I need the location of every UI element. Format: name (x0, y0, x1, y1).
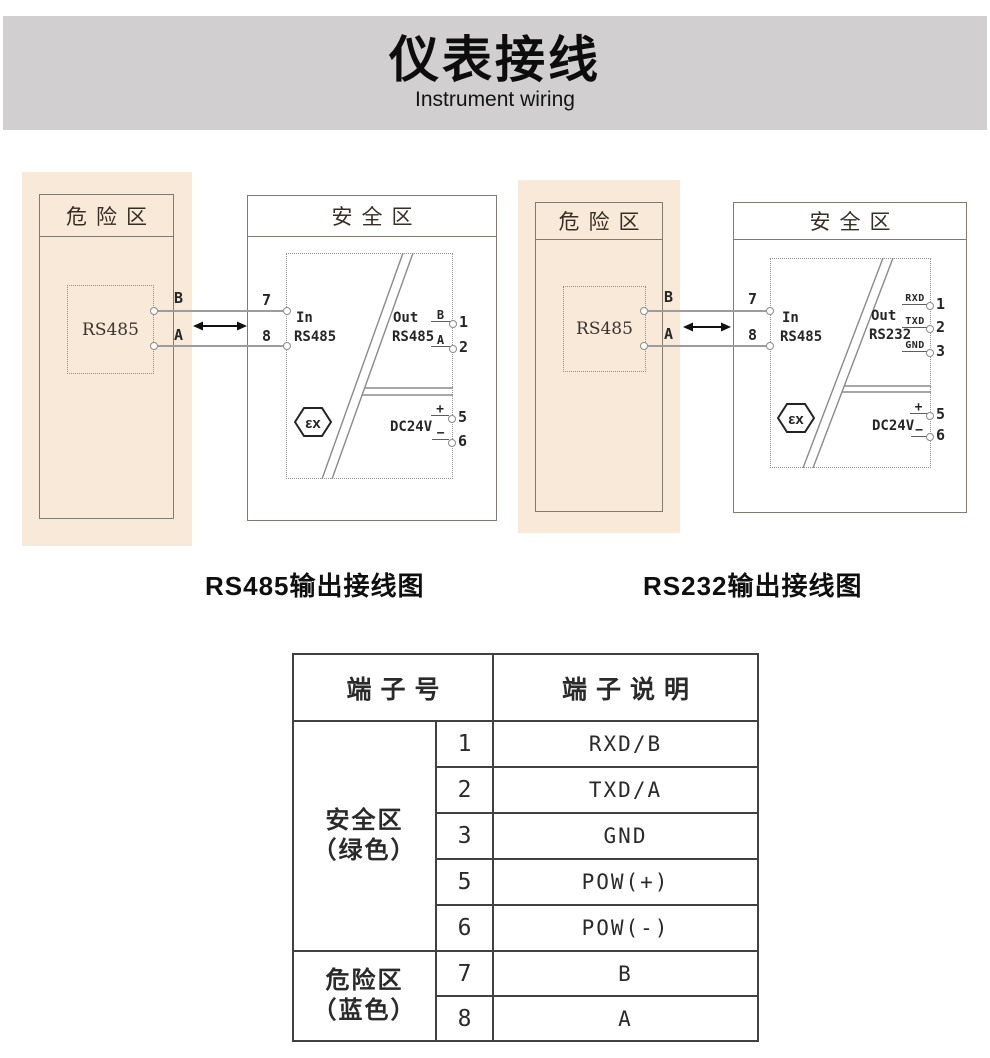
in-terminal-8: 8 (748, 328, 757, 343)
terminal-circle (926, 433, 934, 441)
terminal-number: 3 (436, 813, 493, 859)
zone-name: 安全区 (294, 806, 435, 836)
terminal-circle (150, 342, 158, 350)
barrier-diagonal-line (332, 253, 413, 479)
out-label: Out (393, 311, 418, 325)
table-row: 安全区 （绿色） 1 RXD/B (293, 721, 758, 767)
terminal-description: A (493, 996, 758, 1041)
device-label: RS485 (82, 320, 139, 340)
terminal-circle (766, 342, 774, 350)
terminal-description: RXD/B (493, 721, 758, 767)
bidirectional-arrow-icon (192, 319, 248, 333)
header-terminal-description: 端子说明 (493, 654, 758, 721)
out-type-label: RS485 (392, 330, 434, 344)
zone-name: 危险区 (294, 966, 435, 996)
power-terminal-number: 5 (936, 407, 945, 422)
terminal-circle (449, 345, 457, 353)
out-terminal-number: 1 (459, 315, 468, 330)
terminal-circle (640, 342, 648, 350)
out-terminal-number: 1 (936, 297, 945, 312)
hazard-zone-title: 危险区 (40, 195, 173, 237)
wire-label-b: B (174, 291, 183, 306)
terminal-description: POW(+) (493, 859, 758, 905)
device-box: RS485 (563, 286, 646, 372)
power-terminal-number: 6 (458, 434, 467, 449)
barrier-diagonal-line (803, 258, 883, 468)
power-terminal-number: 5 (458, 410, 467, 425)
table-header-row: 端子号 端子说明 (293, 654, 758, 721)
terminal-description: GND (493, 813, 758, 859)
page: 仪表接线 Instrument wiring 危险区 RS485 安全区 εx (0, 0, 990, 1058)
ex-mark: εx (305, 415, 321, 432)
in-terminal-8: 8 (262, 329, 271, 344)
out-terminal-tag: A (431, 334, 450, 347)
caption-rs485: RS485输出接线图 (205, 566, 425, 603)
isolation-barrier-graphic: εx (286, 253, 453, 479)
terminal-number: 6 (436, 905, 493, 951)
terminal-circle (448, 439, 456, 447)
terminal-circle (766, 307, 774, 315)
terminal-circle (926, 302, 934, 310)
terminal-circle (150, 307, 158, 315)
terminal-circle (283, 307, 291, 315)
terminal-table: 端子号 端子说明 安全区 （绿色） 1 RXD/B 2 TXD/A 3 GND … (292, 653, 759, 1042)
ex-mark: εx (788, 411, 804, 428)
safe-zone-title: 安全区 (734, 203, 966, 240)
table-row: 危险区 （蓝色） 7 B (293, 951, 758, 996)
page-title: 仪表接线 (389, 34, 601, 87)
barrier-diagonal-line (813, 258, 893, 468)
header-terminal-number: 端子号 (293, 654, 493, 721)
terminal-number: 5 (436, 859, 493, 905)
terminal-number: 8 (436, 996, 493, 1041)
out-terminal-tag: GND (902, 341, 928, 352)
zone-color-note: （蓝色） (294, 996, 435, 1026)
in-type-label: RS485 (294, 330, 336, 344)
power-label: DC24V (872, 419, 914, 433)
zone-color-note: （绿色） (294, 836, 435, 866)
terminal-description: POW(-) (493, 905, 758, 951)
wire-label-a: A (174, 328, 183, 343)
terminal-number: 2 (436, 767, 493, 813)
out-terminal-tag: RXD (902, 294, 928, 305)
terminal-number: 7 (436, 951, 493, 996)
wire-label-a: A (664, 327, 673, 342)
power-terminal-tag: − (911, 424, 927, 437)
terminal-circle (926, 325, 934, 333)
out-terminal-tag: TXD (902, 317, 928, 328)
in-terminal-7: 7 (262, 293, 271, 308)
terminal-circle (926, 349, 934, 357)
in-terminal-7: 7 (748, 292, 757, 307)
terminal-description: B (493, 951, 758, 996)
in-type-label: RS485 (780, 330, 822, 344)
safe-zone-title: 安全区 (248, 196, 496, 237)
out-terminal-number: 3 (936, 344, 945, 359)
in-label: In (782, 311, 799, 325)
wire-label-b: B (664, 290, 673, 305)
out-label: Out (871, 309, 896, 323)
barrier-diagonal-line (322, 253, 403, 479)
power-terminal-tag: + (910, 401, 927, 414)
wire-a (648, 345, 766, 347)
wire-b (158, 310, 283, 312)
in-label: In (296, 311, 313, 325)
power-terminal-tag: + (431, 403, 449, 416)
hazard-zone-title: 危险区 (536, 203, 662, 240)
terminal-circle (283, 342, 291, 350)
power-terminal-number: 6 (936, 428, 945, 443)
bidirectional-arrow-icon (682, 320, 732, 334)
terminal-circle (449, 320, 457, 328)
power-terminal-tag: − (432, 427, 449, 440)
terminal-circle (448, 415, 456, 423)
terminal-circle (640, 307, 648, 315)
wire-a (158, 345, 283, 347)
wire-b (648, 310, 766, 312)
terminal-number: 1 (436, 721, 493, 767)
zone-cell-hazard: 危险区 （蓝色） (293, 951, 436, 1041)
power-label: DC24V (390, 420, 432, 434)
zone-cell-safe: 安全区 （绿色） (293, 721, 436, 951)
header-banner: 仪表接线 Instrument wiring (3, 16, 987, 130)
caption-rs232: RS232输出接线图 (643, 566, 863, 603)
terminal-circle (926, 412, 934, 420)
device-box: RS485 (67, 285, 154, 374)
terminal-description: TXD/A (493, 767, 758, 813)
out-terminal-tag: B (431, 309, 450, 322)
out-terminal-number: 2 (936, 320, 945, 335)
page-subtitle: Instrument wiring (415, 88, 575, 112)
isolation-barrier-graphic: εx (770, 258, 931, 468)
device-label: RS485 (576, 319, 633, 339)
out-terminal-number: 2 (459, 340, 468, 355)
